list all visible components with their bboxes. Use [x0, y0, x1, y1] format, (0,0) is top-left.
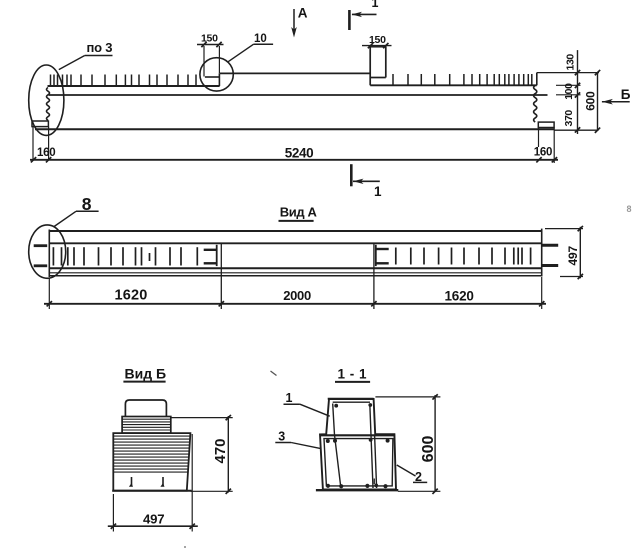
- svg-text:1: 1: [286, 391, 293, 405]
- svg-text:150: 150: [201, 32, 218, 44]
- svg-text:10: 10: [254, 33, 267, 45]
- svg-text:1620: 1620: [115, 288, 148, 304]
- svg-text:1620: 1620: [445, 289, 474, 304]
- svg-text:по 3: по 3: [87, 40, 113, 55]
- svg-text:600: 600: [420, 436, 437, 463]
- svg-text:А: А: [298, 5, 308, 20]
- svg-text:8: 8: [627, 204, 632, 214]
- svg-text:600: 600: [583, 91, 597, 111]
- svg-text:3: 3: [278, 429, 285, 443]
- svg-text:160: 160: [534, 147, 552, 159]
- svg-text:470: 470: [212, 438, 229, 463]
- svg-text:497: 497: [566, 246, 580, 266]
- svg-text:Б: Б: [621, 87, 631, 102]
- svg-text:100: 100: [563, 83, 575, 100]
- svg-text:Вид А: Вид А: [280, 205, 318, 220]
- svg-text:370: 370: [563, 110, 575, 127]
- svg-text:Вид Б: Вид Б: [125, 366, 167, 382]
- svg-text:160: 160: [37, 147, 55, 159]
- svg-text:1: 1: [372, 0, 379, 10]
- svg-text:497: 497: [143, 512, 164, 527]
- svg-text:130: 130: [565, 54, 577, 71]
- svg-text:5240: 5240: [285, 146, 313, 161]
- svg-text:1: 1: [374, 184, 382, 199]
- svg-text:2000: 2000: [283, 288, 311, 303]
- svg-text:1 - 1: 1 - 1: [338, 367, 368, 382]
